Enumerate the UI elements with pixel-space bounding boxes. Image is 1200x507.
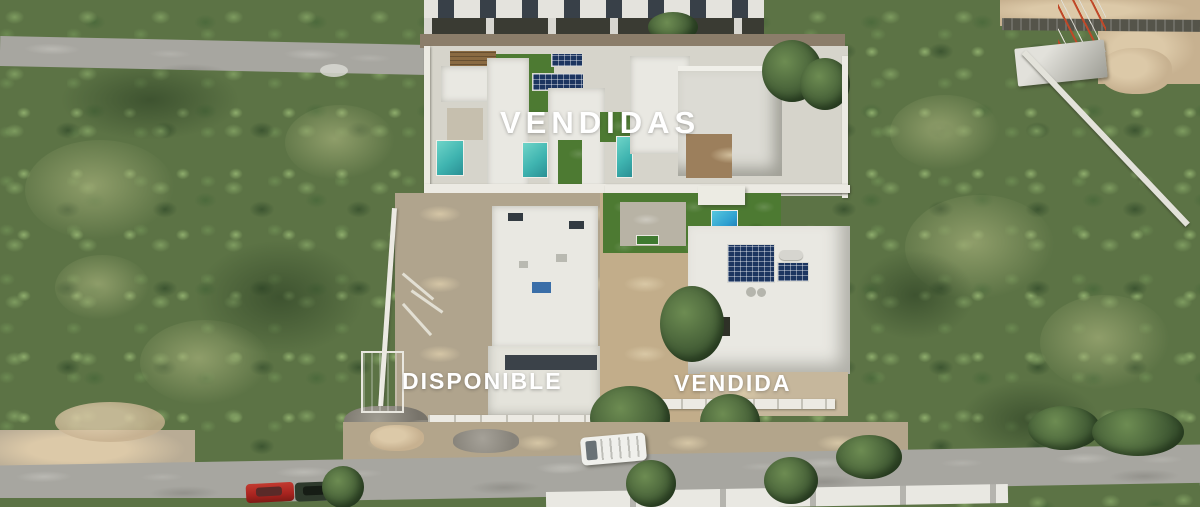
- rooftop-fan: [746, 287, 756, 297]
- label-vendidas: VENDIDAS: [500, 105, 700, 141]
- skylight: [569, 221, 584, 229]
- sand-mound: [370, 425, 424, 451]
- solar-panel-array: [727, 244, 775, 283]
- parked-van-white: [580, 432, 647, 466]
- roadside-bush: [1028, 406, 1100, 450]
- skylight: [508, 213, 523, 221]
- vegetation-patch: [25, 140, 175, 240]
- gravel-pile: [453, 429, 519, 453]
- vegetation-patch: [195, 240, 365, 355]
- sand-patch: [55, 402, 165, 442]
- vegetation-patch: [55, 255, 150, 320]
- van-windshield: [585, 440, 598, 460]
- roadside-bush: [322, 466, 364, 507]
- vegetation-patch: [1040, 295, 1170, 390]
- boundary-wall: [424, 46, 430, 196]
- tree: [764, 457, 818, 504]
- tree: [836, 435, 902, 479]
- vegetation-patch: [60, 60, 240, 140]
- tree: [626, 460, 676, 507]
- villa-roof: [441, 66, 493, 102]
- villa-patio: [447, 108, 483, 140]
- green-mat: [636, 235, 659, 245]
- rooftop-unit: [519, 261, 528, 268]
- swimming-pool: [522, 142, 548, 178]
- townhouse-row: [424, 0, 764, 38]
- solar-panel-array: [777, 262, 809, 282]
- parked-car-red: [246, 482, 295, 503]
- white-debris: [320, 64, 348, 77]
- water-cistern: [361, 351, 404, 413]
- van-roof-lines: [600, 436, 642, 460]
- solar-panel-array: [551, 53, 583, 67]
- white-pergola: [698, 186, 745, 205]
- blue-tarp: [532, 282, 551, 293]
- rooftop-unit: [556, 254, 567, 262]
- tree: [660, 286, 724, 362]
- vegetation-patch: [890, 95, 1000, 170]
- roadside-bush: [1092, 408, 1184, 456]
- sand-patch: [1100, 48, 1172, 94]
- label-disponible: DISPONIBLE: [402, 368, 563, 395]
- boundary-wall: [842, 56, 848, 198]
- vegetation-patch: [285, 105, 395, 180]
- rooftop-fan: [757, 288, 766, 297]
- car-windows: [256, 486, 282, 496]
- aerial-photo: VENDIDAS DISPONIBLE VENDIDA: [0, 0, 1200, 507]
- swimming-pool: [436, 140, 464, 176]
- label-vendida: VENDIDA: [674, 370, 792, 397]
- vegetation-patch: [855, 250, 975, 340]
- townhouse-windows: [424, 0, 764, 18]
- rooftop-vent: [779, 250, 803, 260]
- roadside-green: [0, 498, 250, 507]
